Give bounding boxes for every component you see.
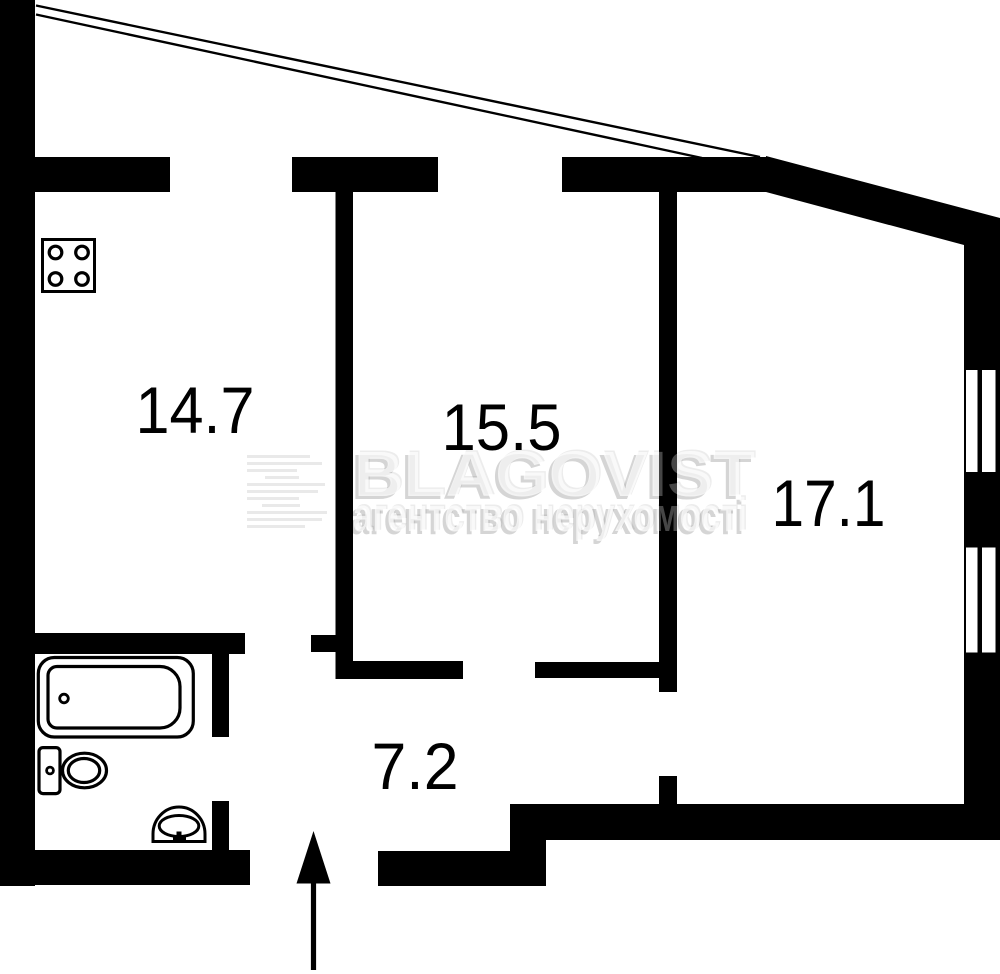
svg-text:17.1: 17.1 — [772, 466, 886, 540]
svg-text:14.7: 14.7 — [136, 373, 255, 447]
svg-text:агентство нерухомості: агентство нерухомості — [353, 488, 747, 541]
svg-text:15.5: 15.5 — [442, 390, 562, 464]
svg-text:7.2: 7.2 — [372, 729, 459, 803]
